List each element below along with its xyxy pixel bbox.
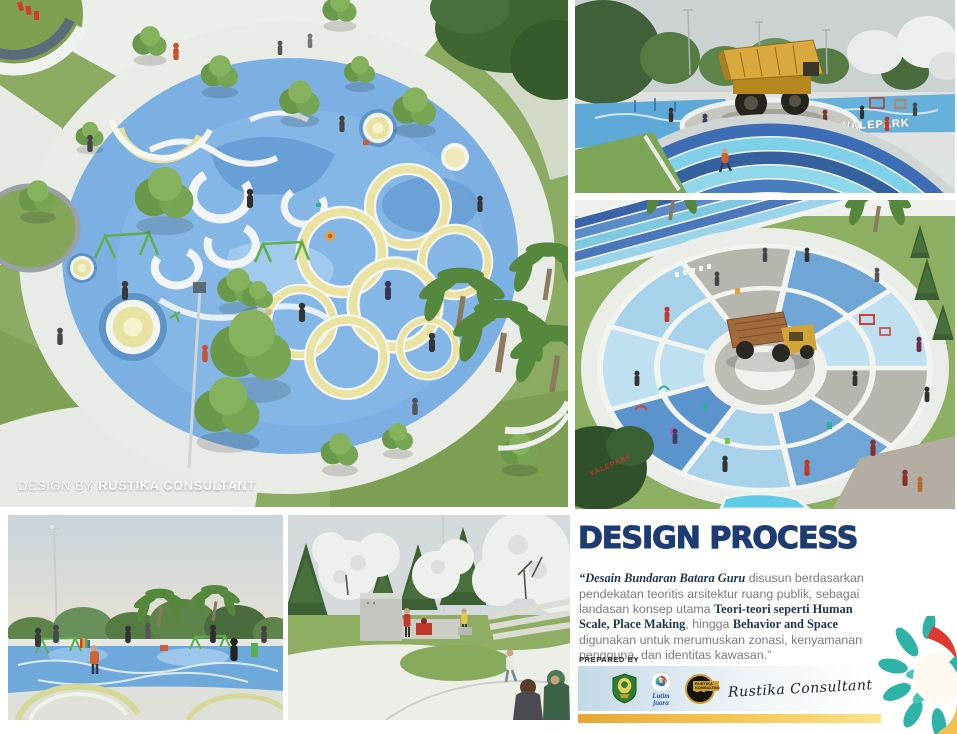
lutim-juara-emblem	[650, 671, 672, 693]
truck-monument	[718, 40, 823, 125]
truck-eyelevel-art: VALEPARK VALEPARK	[575, 0, 955, 193]
floral-ornament-art	[877, 616, 957, 734]
para-seg2: , hingga	[685, 617, 733, 631]
presentation-board: DESIGN BYRUSTIKA CONSULTANT	[0, 0, 957, 734]
credit-prefix: DESIGN BY	[18, 478, 93, 493]
boundary-wall	[8, 639, 283, 646]
signature-text: Rustika Consultant	[728, 677, 873, 701]
truck-plaza-art: VALEPARK	[575, 200, 955, 509]
foreground-paths	[8, 686, 283, 720]
playground-art	[8, 515, 283, 720]
gold-divider-bar	[578, 714, 881, 723]
main-render-art	[0, 0, 568, 507]
credit-name: RUSTIKA CONSULTANT	[98, 478, 256, 493]
logo-band: Lutim juara R RUSTIKA KONSULTAN Rustika …	[578, 666, 881, 711]
quote-title: “Desain Bundaran Batara Guru	[579, 571, 745, 585]
section-paragraph: “Desain Bundaran Batara Guru disusun ber…	[579, 571, 886, 663]
section-title: DESIGN PROCESS	[578, 521, 857, 556]
rustika-monogram-logo: R RUSTIKA KONSULTAN	[685, 674, 715, 704]
monument-path-art	[288, 515, 570, 720]
lutim-juara-logo: Lutim juara	[650, 671, 672, 706]
monogram-caption: RUSTIKA KONSULTAN	[693, 681, 719, 691]
render-truck-plaza-aerial: VALEPARK	[575, 200, 955, 509]
render-playground-ground-view	[8, 515, 283, 720]
prepared-by-label: PREPARED BY	[579, 655, 639, 664]
regency-seal-logo	[612, 673, 637, 704]
design-credit: DESIGN BYRUSTIKA CONSULTANT	[18, 478, 256, 493]
lutim-caption-line2: juara	[653, 700, 669, 707]
para-bold2: Behavior and Space	[733, 617, 838, 631]
render-main-aerial-playground: DESIGN BYRUSTIKA CONSULTANT	[0, 0, 568, 507]
render-monument-path-view	[288, 515, 570, 720]
floral-ornament	[877, 616, 957, 734]
render-truck-monument-eyelevel: VALEPARK VALEPARK	[575, 0, 955, 193]
